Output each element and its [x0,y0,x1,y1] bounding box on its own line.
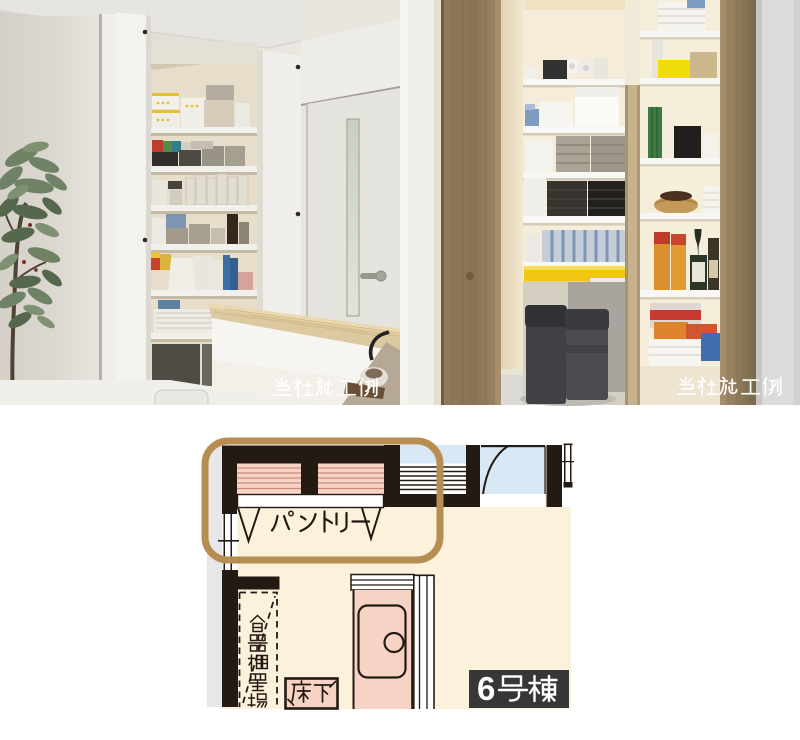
svg-text:6: 6 [477,670,495,707]
